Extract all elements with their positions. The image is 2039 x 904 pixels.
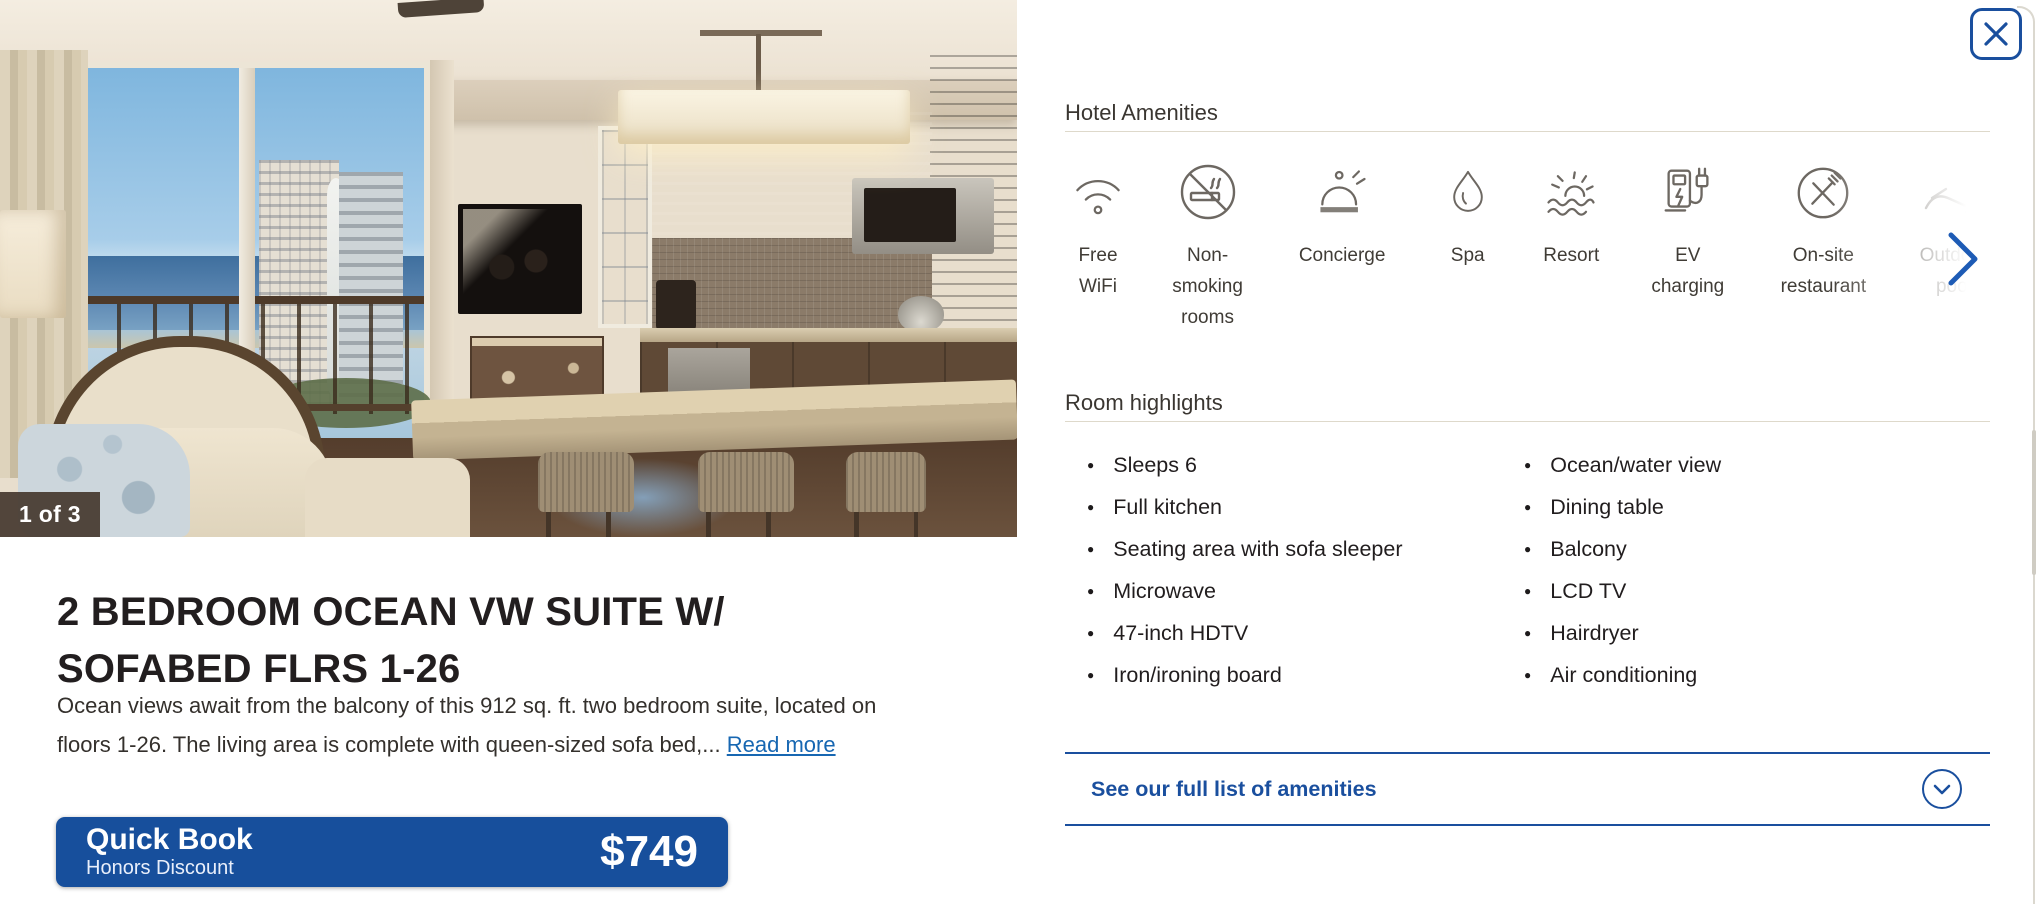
outdoor-pool-icon: [1922, 158, 1986, 224]
amenities-next-chevron-icon[interactable]: [1944, 230, 1984, 290]
highlight-item: Dining table: [1524, 486, 1721, 528]
highlights-list-right: Ocean/water view Dining table Balcony LC…: [1524, 444, 1721, 696]
full-amenities-accordion[interactable]: See our full list of amenities: [1065, 752, 1990, 826]
highlights-list-left: Sleeps 6 Full kitchen Seating area with …: [1087, 444, 1402, 696]
resort-sun-icon: [1540, 158, 1602, 224]
amenity-label: Non-smoking rooms: [1171, 240, 1245, 333]
photo-tv-screen: [463, 209, 577, 309]
amenities-row: Free WiFi Non-smoking rooms: [1068, 158, 1990, 333]
highlight-item: Hairdryer: [1524, 612, 1721, 654]
wifi-icon: [1068, 158, 1128, 224]
highlight-item: Ocean/water view: [1524, 444, 1721, 486]
quick-book-text: Quick Book Honors Discount: [86, 824, 253, 880]
amenity-label: Free WiFi: [1070, 240, 1126, 302]
amenity-label: EV charging: [1647, 240, 1729, 302]
quick-book-sublabel: Honors Discount: [86, 856, 253, 880]
highlight-item: Sleeps 6: [1087, 444, 1402, 486]
photo-pendant-bar: [700, 30, 822, 36]
room-detail-modal: 1 of 3 2 BEDROOM OCEAN VW SUITE W/ SOFAB…: [0, 0, 2039, 904]
highlights-divider: [1065, 421, 1990, 422]
full-amenities-link[interactable]: See our full list of amenities: [1091, 777, 1377, 802]
scrollbar-thumb[interactable]: [2032, 430, 2036, 575]
photo-bar-stool: [538, 452, 634, 537]
room-description-line2-text: floors 1-26. The living area is complete…: [57, 732, 721, 757]
amenity-free-wifi: Free WiFi: [1068, 158, 1128, 333]
room-description: Ocean views await from the balcony of th…: [57, 686, 876, 764]
photo-pendant-rod: [756, 34, 761, 92]
photo-kitchen-window: [598, 126, 652, 328]
room-title: 2 BEDROOM OCEAN VW SUITE W/ SOFABED FLRS…: [57, 584, 897, 698]
room-description-line1: Ocean views await from the balcony of th…: [57, 686, 876, 725]
amenity-label: Resort: [1538, 240, 1604, 271]
photo-counter-badge: 1 of 3: [0, 492, 100, 537]
photo-armchair-2: [305, 458, 470, 537]
highlight-item: Full kitchen: [1087, 486, 1402, 528]
room-description-line2: floors 1-26. The living area is complete…: [57, 725, 876, 764]
photo-bar-stool: [698, 452, 794, 537]
no-smoking-icon: [1176, 158, 1240, 224]
amenity-non-smoking: Non-smoking rooms: [1171, 158, 1245, 333]
amenities-section-title: Hotel Amenities: [1065, 100, 1218, 126]
amenity-resort: Resort: [1538, 158, 1604, 333]
read-more-link[interactable]: Read more: [727, 732, 836, 757]
close-button[interactable]: [1970, 8, 2022, 60]
amenity-label: On-site restaurant: [1771, 240, 1875, 302]
spa-droplet-icon: [1442, 158, 1494, 224]
highlight-item: Air conditioning: [1524, 654, 1721, 696]
amenity-ev-charging: EV charging: [1647, 158, 1729, 333]
photo-kettle: [898, 296, 944, 332]
photo-coffee-maker: [656, 280, 696, 330]
highlight-item: LCD TV: [1524, 570, 1721, 612]
amenity-restaurant: On-site restaurant: [1771, 158, 1875, 333]
quick-book-label: Quick Book: [86, 824, 253, 856]
photo-bar-stool: [846, 452, 926, 537]
amenity-spa: Spa: [1440, 158, 1496, 333]
photo-microwave-window: [864, 188, 956, 242]
highlight-item: Iron/ironing board: [1087, 654, 1402, 696]
room-photo[interactable]: 1 of 3: [0, 0, 1017, 537]
amenities-divider: [1065, 131, 1990, 132]
amenity-label: Spa: [1440, 240, 1496, 271]
concierge-bell-icon: [1311, 158, 1373, 224]
quick-book-button[interactable]: Quick Book Honors Discount $749: [56, 817, 728, 887]
highlight-item: Balcony: [1524, 528, 1721, 570]
photo-counter: [640, 328, 1017, 342]
photo-lamp: [0, 210, 66, 318]
photo-microwave: [852, 178, 994, 254]
highlights-section-title: Room highlights: [1065, 390, 1223, 416]
restaurant-icon: [1792, 158, 1854, 224]
close-icon: [1983, 21, 2009, 47]
quick-book-price: $749: [600, 827, 698, 877]
photo-wall-tv: [458, 204, 582, 314]
chevron-down-circle-icon[interactable]: [1922, 769, 1962, 809]
highlight-item: Microwave: [1087, 570, 1402, 612]
ev-charging-icon: [1657, 158, 1719, 224]
photo-pendant-light: [618, 90, 910, 144]
highlight-item: 47-inch HDTV: [1087, 612, 1402, 654]
highlight-item: Seating area with sofa sleeper: [1087, 528, 1402, 570]
amenity-concierge: Concierge: [1287, 158, 1397, 333]
amenity-label: Concierge: [1287, 240, 1397, 271]
